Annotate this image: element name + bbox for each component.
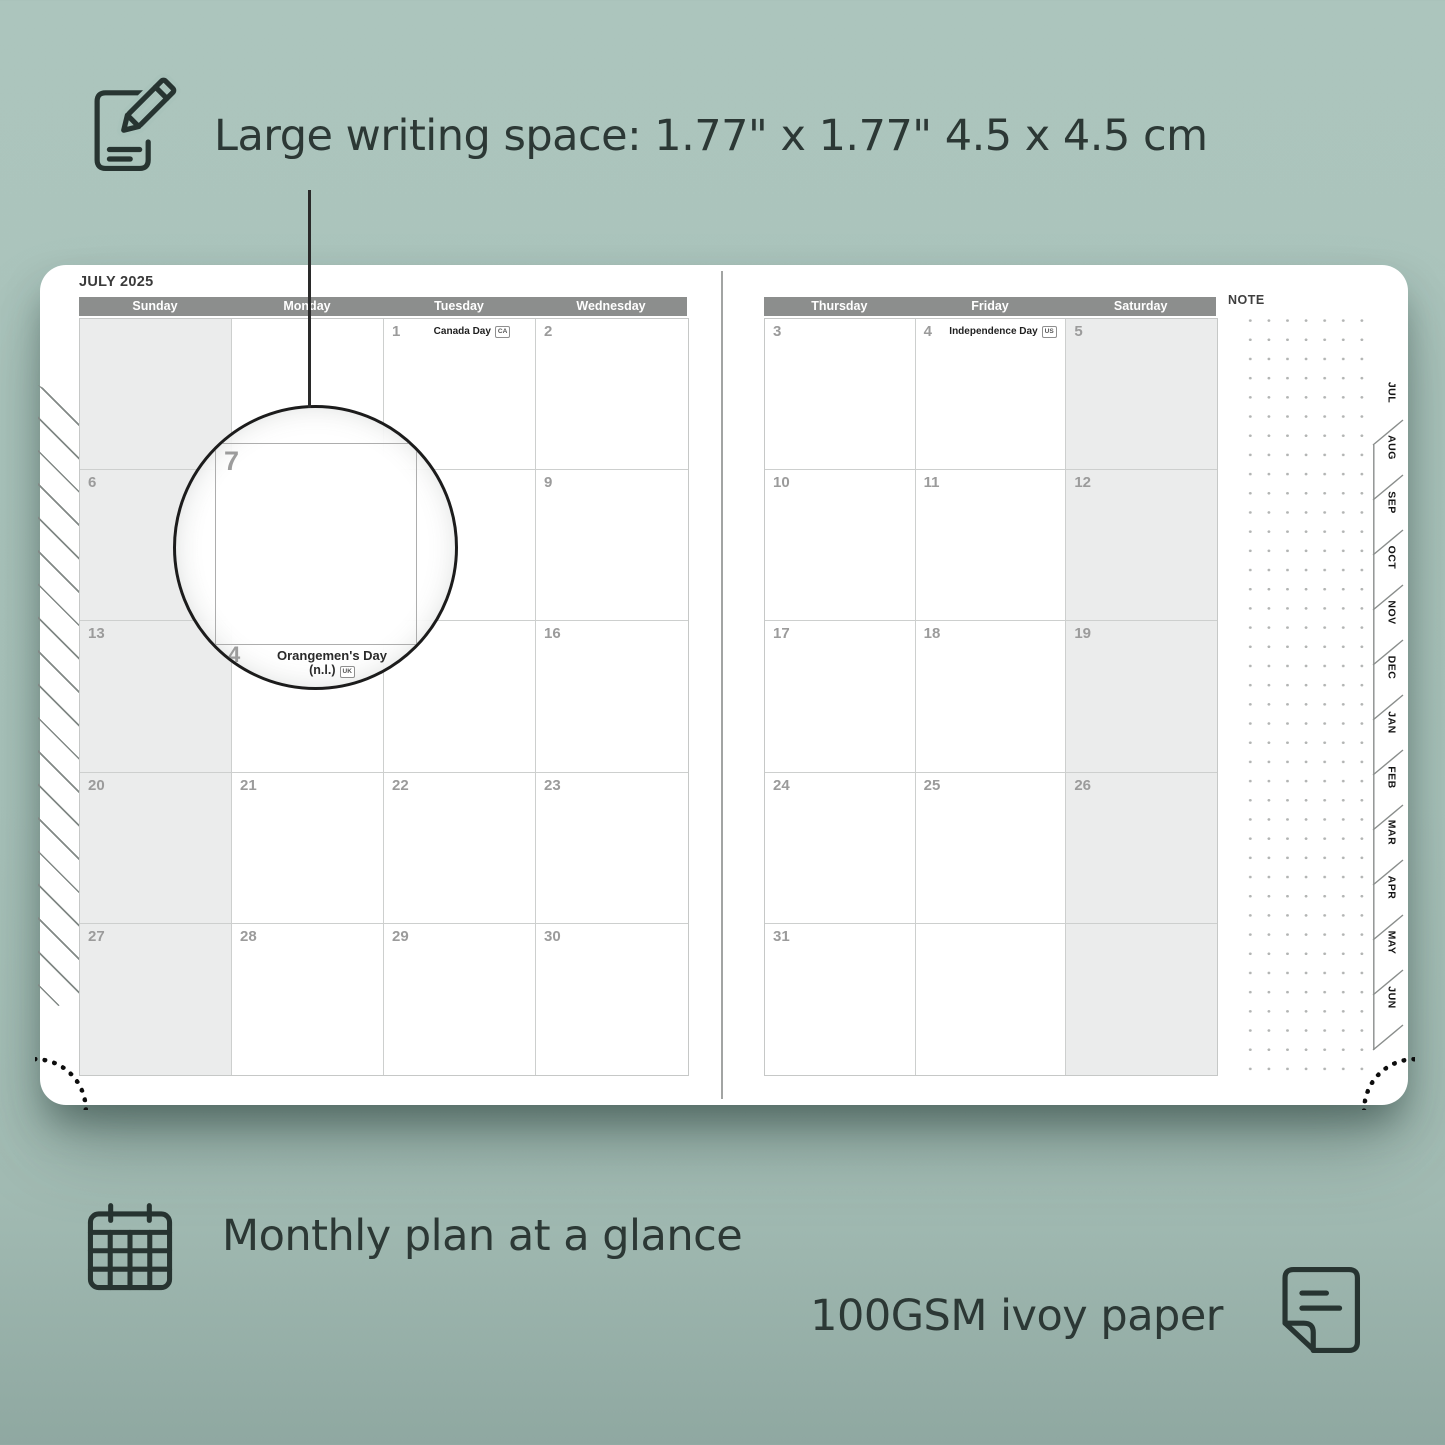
day-cell-21: 21 [232,773,384,924]
date-number: 31 [773,928,790,945]
date-number: 16 [544,625,561,642]
day-cell-31: 31 [765,924,916,1075]
uk-flag-badge: UK [340,666,355,678]
lens-holiday-line2: (n.l.)UK [212,663,452,678]
holiday-label: Independence DayUS [944,326,1063,338]
date-number: 6 [88,474,96,491]
date-number: 26 [1074,777,1091,794]
day-cell-29: 29 [384,924,536,1075]
tab-separator [1373,1025,1403,1050]
monthly-plan-annotation: Monthly plan at a glance [222,1211,742,1261]
callout-line [308,190,311,408]
date-number: 24 [773,777,790,794]
month-tab-mar: MAR [1385,820,1397,845]
month-tab-oct: OCT [1385,546,1397,570]
month-tab-jul: JUL [1385,382,1397,403]
month-tab-sep: SEP [1385,491,1397,514]
note-label: NOTE [1228,293,1265,307]
flag-badge: CA [495,326,510,338]
date-number: 10 [773,474,790,491]
corner-perforation-left [0,1057,88,1163]
day-cell-9: 9 [536,470,688,621]
date-number: 9 [544,474,552,491]
calendar-icon [84,1202,176,1294]
paper-annotation: 100GSM ivoy paper [810,1291,1223,1341]
day-cell-27: 27 [80,924,232,1075]
date-number: 2 [544,323,552,340]
writing-space-annotation: Large writing space: 1.77" x 1.77" 4.5 x… [214,111,1208,161]
day-cell-20: 20 [80,773,232,924]
date-number: 4 [924,323,932,340]
day-cell-13: 13 [80,621,232,772]
date-number: 29 [392,928,409,945]
day-cell-26: 26 [1066,773,1217,924]
paper-icon [1270,1262,1364,1358]
day-cell-3: 3 [765,319,916,470]
note-dot-grid [1238,307,1378,1073]
day-cell-30: 30 [536,924,688,1075]
planner-spread: JULY 2025 SundayMondayTuesdayWednesday 1… [40,265,1408,1105]
weekday-header-row-left: SundayMondayTuesdayWednesday [79,297,687,316]
day-cell-empty [916,924,1067,1075]
day-cell-18: 18 [916,621,1067,772]
month-tab-jun: JUN [1385,986,1397,1009]
date-number: 3 [773,323,781,340]
day-cell-22: 22 [384,773,536,924]
month-title: JULY 2025 [79,274,153,290]
day-cell-2: 2 [536,319,688,470]
month-tabs-strip: JULAUGSEPOCTNOVDECJANFEBMARAPRMAYJUN [1373,365,1403,1055]
date-number: 17 [773,625,790,642]
day-cell-4: 4Independence DayUS [916,319,1067,470]
date-number: 13 [88,625,105,642]
weekday-header-row-right: ThursdayFridaySaturday [764,297,1216,316]
date-number: 28 [240,928,257,945]
date-number: 11 [924,474,940,491]
page-gutter [721,271,723,1099]
date-number: 1 [392,323,400,340]
weekday-header-monday: Monday [231,297,383,316]
lens-holiday-label: Orangemen's Day (n.l.)UK [212,648,452,678]
date-number: 12 [1074,474,1091,491]
month-tab-feb: FEB [1385,766,1397,789]
day-cell-17: 17 [765,621,916,772]
date-number: 18 [924,625,941,642]
day-cell-23: 23 [536,773,688,924]
date-number: 25 [924,777,941,794]
weekday-header-tuesday: Tuesday [383,297,535,316]
date-number: 27 [88,928,105,945]
day-cell-19: 19 [1066,621,1217,772]
lens-holiday-line1: Orangemen's Day [212,648,452,663]
date-number: 21 [240,777,257,794]
weekday-header-thursday: Thursday [764,297,915,316]
month-tab-dec: DEC [1385,656,1397,680]
day-cell-11: 11 [916,470,1067,621]
weekday-header-sunday: Sunday [79,297,231,316]
date-number: 20 [88,777,105,794]
magnified-cell-outline [215,443,417,645]
weekday-header-friday: Friday [915,297,1066,316]
day-cell-empty [80,319,232,470]
magnifier-circle: 7 4 Orangemen's Day (n.l.)UK [173,405,458,690]
weekday-header-wednesday: Wednesday [535,297,687,316]
magnified-date: 7 [224,446,239,477]
month-tab-apr: APR [1385,876,1397,900]
holiday-label: Canada DayCA [412,326,532,338]
day-cell-5: 5 [1066,319,1217,470]
flag-badge: US [1042,326,1057,338]
date-number: 30 [544,928,561,945]
date-number: 23 [544,777,561,794]
pencil-note-icon [86,72,182,176]
day-cell-16: 16 [536,621,688,772]
day-cell-24: 24 [765,773,916,924]
date-number: 19 [1074,625,1091,642]
day-cell-empty [1066,924,1217,1075]
day-cell-10: 10 [765,470,916,621]
weekday-header-saturday: Saturday [1065,297,1216,316]
month-tab-aug: AUG [1385,435,1397,460]
month-tab-jan: JAN [1385,711,1397,734]
date-number: 22 [392,777,409,794]
calendar-grid-right: 34Independence DayUS51011121718192425263… [764,318,1218,1076]
day-cell-25: 25 [916,773,1067,924]
date-number: 5 [1074,323,1082,340]
day-cell-28: 28 [232,924,384,1075]
day-cell-12: 12 [1066,470,1217,621]
month-tab-may: MAY [1385,931,1397,955]
month-tab-nov: NOV [1385,600,1397,624]
